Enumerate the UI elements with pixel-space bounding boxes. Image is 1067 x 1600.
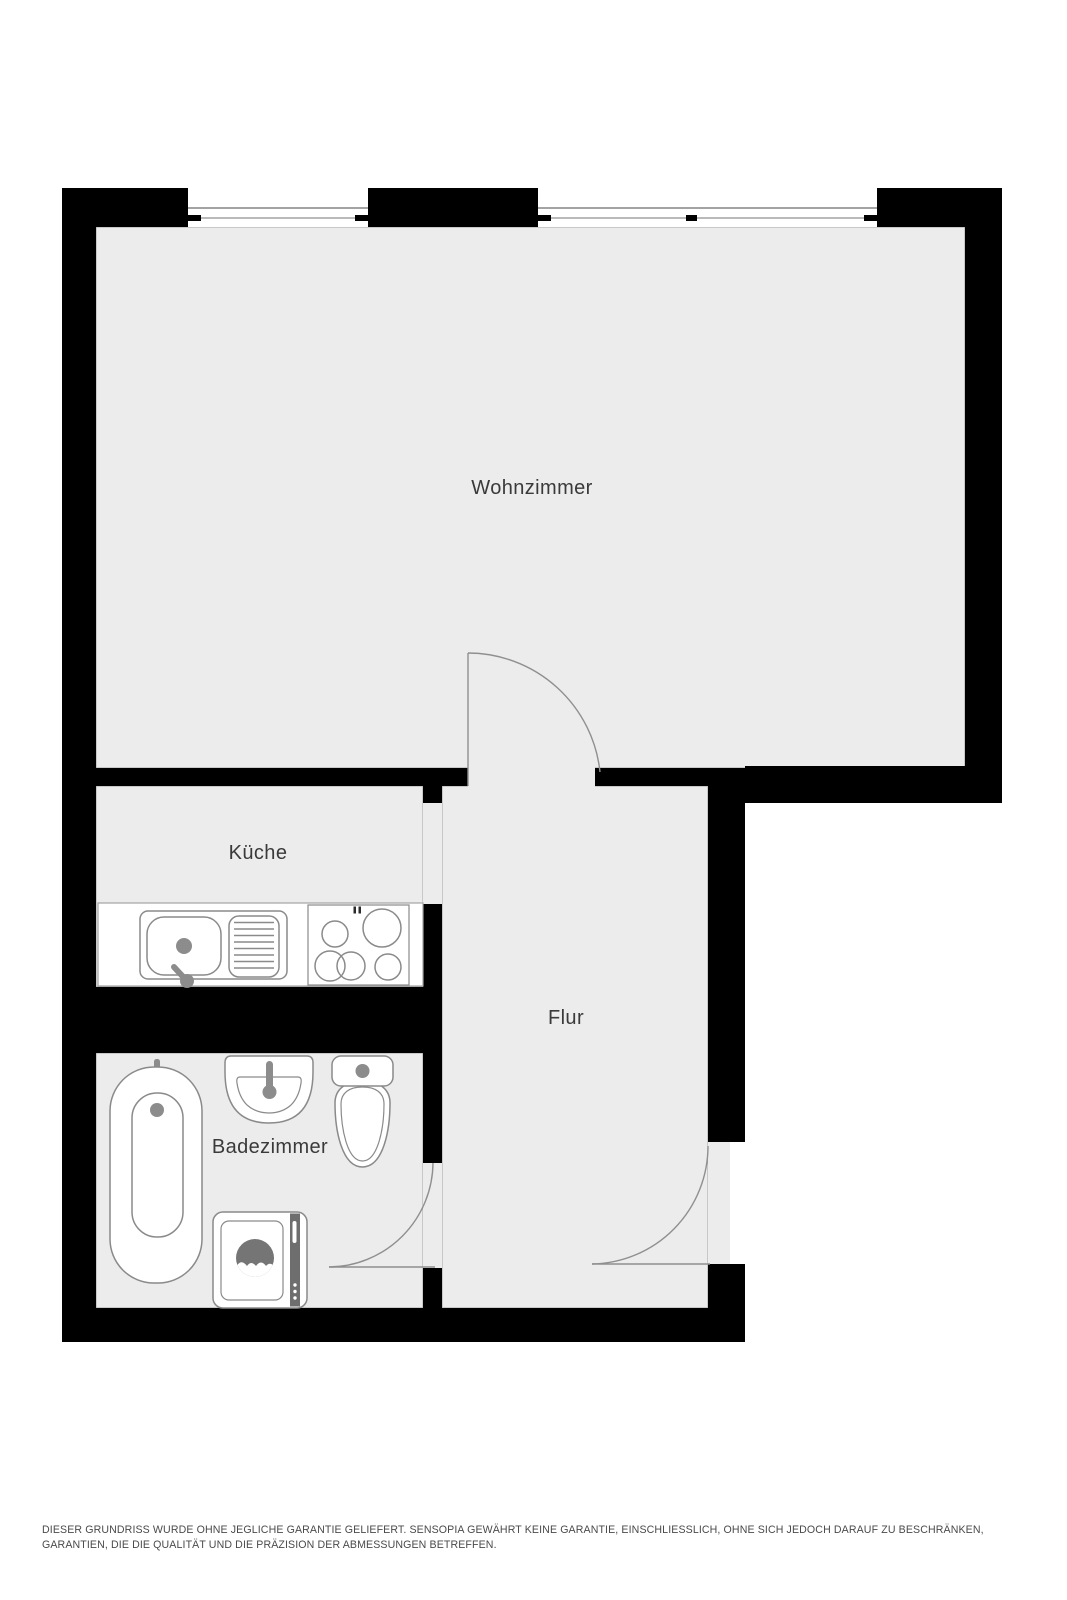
window-mullion-tick [686,215,697,221]
window-end-tick [355,215,368,221]
opening-badezimmer-flur [423,1163,442,1268]
sink-faucet-knob [180,974,194,988]
washer-led [293,1296,296,1299]
window-end-tick [538,215,551,221]
wall-bottom [62,1308,745,1342]
wall-kueche-bad-divider [96,987,442,1053]
room-label-badezimmer: Badezimmer [212,1136,328,1158]
sink-drain [176,938,192,954]
opening-wohnzimmer-flur [468,767,595,787]
basin-faucet-knob [263,1085,277,1099]
wall-wohnzimmer-bottom-left [96,768,468,786]
wall-left [62,188,96,1342]
washer-detergent-slot [293,1221,297,1243]
washing-machine-icon [213,1212,307,1308]
stove-icon [308,905,409,985]
stove-control-tick [354,907,357,914]
stove-control-tick [359,907,362,914]
room-label-wohnzimmer: Wohnzimmer [471,477,592,499]
floor-plan-drawing: Wohnzimmer Küche Flur Badezimmer [0,0,1067,1600]
wall-kueche-flur-stub [423,786,442,803]
disclaimer-text: DIESER GRUNDRISS WURDE OHNE JEGLICHE GAR… [42,1523,1036,1552]
room-flur-floor [442,786,708,1308]
wall-right [965,188,1002,803]
bathtub-icon [110,1059,202,1283]
kitchen-sink-icon [140,911,287,988]
tub-drain [150,1103,164,1117]
room-label-flur: Flur [548,1007,584,1029]
stove-body [308,905,409,985]
wall-wohnzimmer-bottom-right [745,766,1002,803]
washer-led [293,1290,296,1293]
opening-kueche-flur [423,803,442,904]
toilet-flush-button [356,1064,370,1078]
wall-top-middle [368,188,538,227]
washer-led [293,1283,296,1286]
window-end-tick [864,215,877,221]
window-end-tick [188,215,201,221]
washbasin-icon [225,1056,313,1123]
window-icon-2 [538,188,877,227]
floor-plan-page: Wohnzimmer Küche Flur Badezimmer DIESER … [0,0,1067,1600]
wall-flur-right-upper [708,768,745,1142]
opening-entrance [708,1142,730,1264]
window-icon-1 [188,188,368,227]
room-label-kueche: Küche [229,842,288,864]
